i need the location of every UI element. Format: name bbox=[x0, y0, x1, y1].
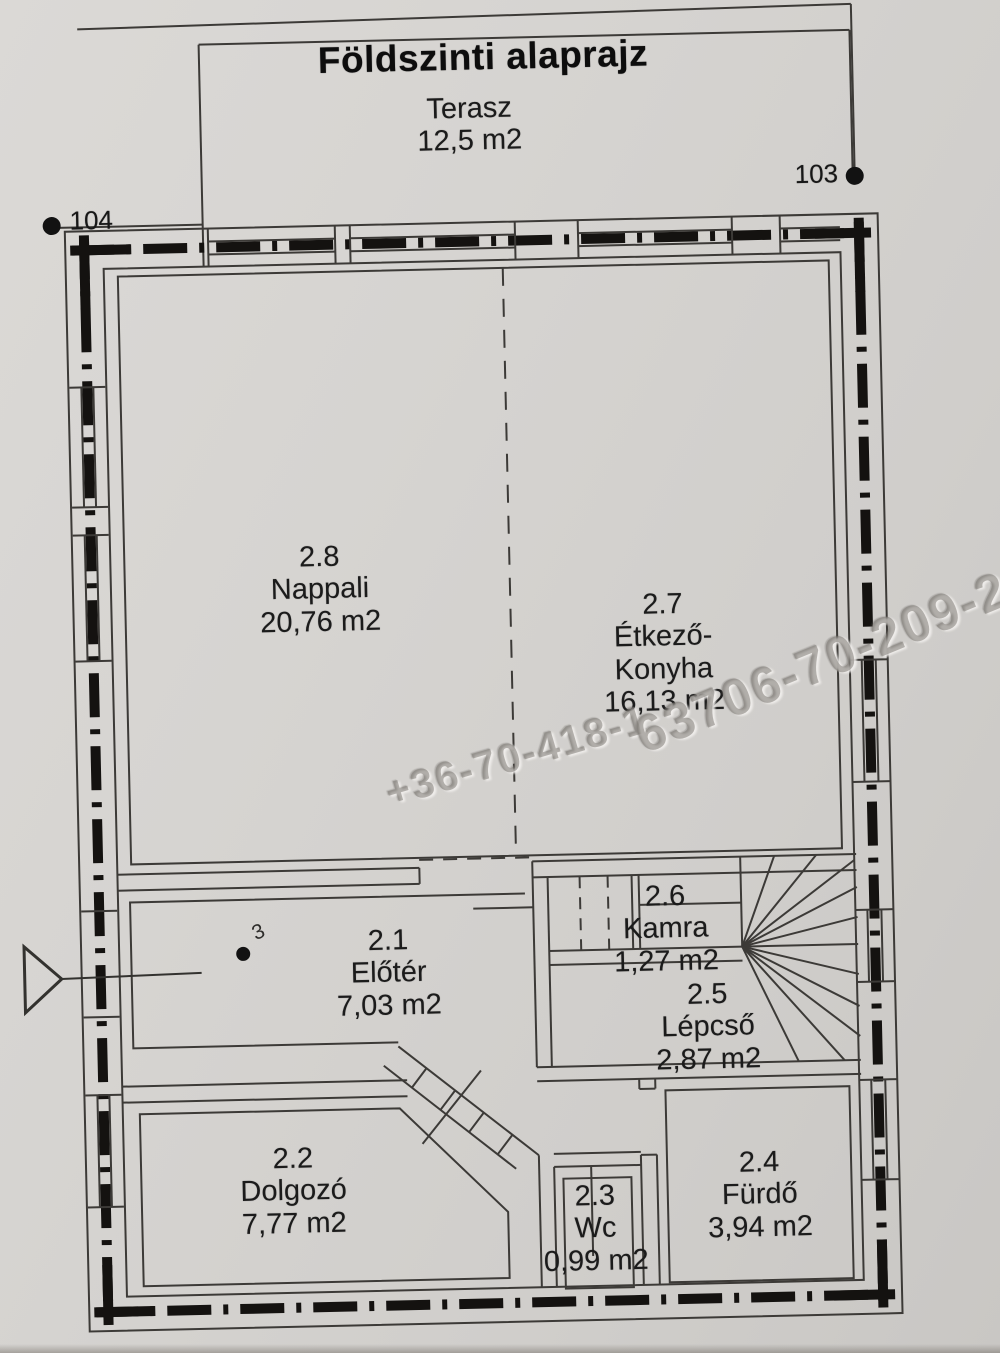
room-id: 2.3 bbox=[574, 1180, 615, 1213]
terrace-name: Terasz bbox=[426, 92, 512, 126]
room-area: 7,03 m2 bbox=[337, 988, 442, 1022]
room-id: 2.6 bbox=[645, 880, 686, 913]
room-name: Előtér bbox=[350, 956, 426, 990]
room-name: Dolgozó bbox=[240, 1174, 347, 1208]
marker-104: 104 bbox=[69, 205, 113, 237]
room-name: Nappali bbox=[270, 572, 369, 606]
room-name: Lépcső bbox=[661, 1010, 755, 1044]
room-label-furdo: 2.4 Fürdő 3,94 m2 bbox=[706, 1145, 813, 1245]
floorplan-photo: Földszinti alaprajz Terasz 12,5 m2 103 1… bbox=[0, 0, 1000, 1353]
room-area: 7,77 m2 bbox=[242, 1207, 347, 1241]
room-name: Étkező- bbox=[614, 620, 713, 654]
marker-103: 103 bbox=[794, 158, 838, 190]
room-area: 20,76 m2 bbox=[260, 605, 382, 640]
room-name: Fürdő bbox=[722, 1178, 798, 1212]
room-label-wc: 2.3 Wc 0,99 m2 bbox=[542, 1179, 649, 1279]
terrace-area: 12,5 m2 bbox=[417, 124, 522, 158]
floorplan-sheet: Földszinti alaprajz Terasz 12,5 m2 103 1… bbox=[0, 0, 1000, 1353]
room-name: Kamra bbox=[623, 912, 709, 946]
room-id: 2.1 bbox=[367, 924, 408, 957]
survey-dots bbox=[42, 167, 881, 965]
survey-dot-104 bbox=[42, 217, 60, 235]
room-area: 0,99 m2 bbox=[544, 1244, 649, 1278]
room-label-kamra: 2.6 Kamra 1,27 m2 bbox=[612, 879, 719, 979]
room-id: 2.8 bbox=[299, 541, 340, 574]
room-id: 2.7 bbox=[642, 588, 683, 621]
room-label-dolgozo: 2.2 Dolgozó 7,77 m2 bbox=[239, 1142, 348, 1242]
survey-dot-103 bbox=[846, 167, 864, 185]
room-id: 2.4 bbox=[739, 1146, 780, 1179]
room-name: Wc bbox=[574, 1212, 617, 1245]
room-area: 1,27 m2 bbox=[614, 944, 719, 978]
entry-arrow bbox=[24, 943, 202, 1013]
living-area-lines bbox=[104, 260, 843, 890]
page-title: Földszinti alaprajz bbox=[317, 32, 648, 81]
room-id: 2.5 bbox=[687, 978, 728, 1011]
room-area: 3,94 m2 bbox=[708, 1210, 813, 1244]
terrace-label: Terasz 12,5 m2 bbox=[416, 91, 522, 158]
room-area: 2,87 m2 bbox=[656, 1042, 761, 1076]
room-label-eloter: 2.1 Előtér 7,03 m2 bbox=[335, 923, 442, 1023]
hall-dot bbox=[236, 947, 250, 961]
room-id: 2.2 bbox=[272, 1142, 313, 1175]
room-label-nappali: 2.8 Nappali 20,76 m2 bbox=[258, 540, 381, 640]
room-label-lepcso: 2.5 Lépcső 2,87 m2 bbox=[655, 977, 762, 1077]
